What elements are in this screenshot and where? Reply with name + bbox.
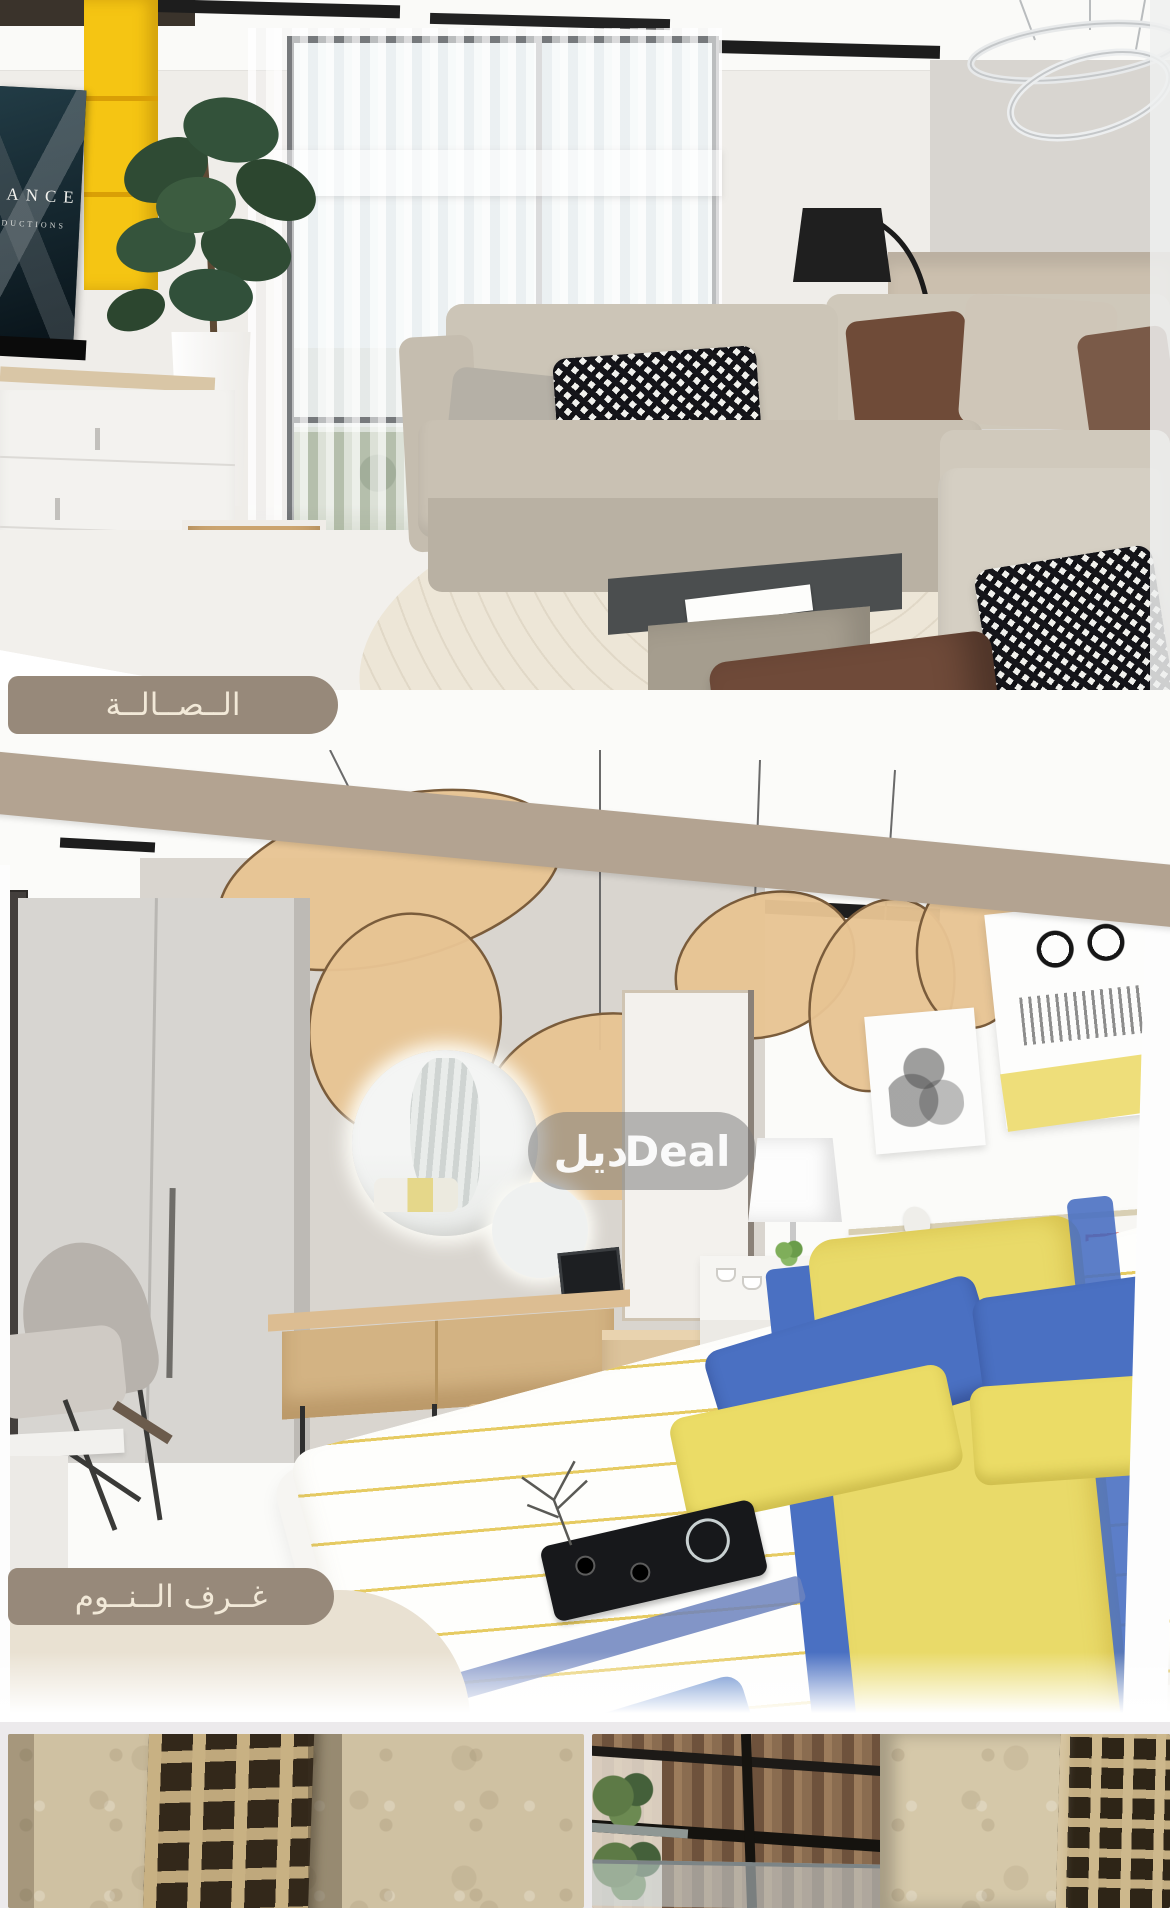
desk-side-panel — [0, 1456, 68, 1586]
cat-glasses-sketch — [1012, 913, 1152, 1046]
mirror-bed-reflection — [374, 1178, 458, 1212]
bedroom-label: غــرف الــنــوم — [8, 1568, 334, 1625]
watermark: ديلDeal — [528, 1112, 756, 1190]
tv-screen: DANCE PRODUCTIONS — [0, 86, 87, 342]
bear-sketch — [885, 1039, 966, 1133]
stone-column — [880, 1734, 1062, 1908]
living-room-label-text: الــصــالــة — [106, 687, 241, 723]
ring-chandelier — [940, 0, 1170, 150]
mashrabiya-lattice-panel — [142, 1734, 314, 1908]
facade-tile-right — [592, 1734, 1170, 1908]
tea-cup — [742, 1276, 762, 1290]
glass-teapot — [682, 1514, 735, 1567]
facade-tile-left — [8, 1734, 584, 1908]
green-sprig — [772, 1238, 806, 1266]
mashrabiya-lattice-right — [1056, 1734, 1170, 1908]
floor-lamp-shade — [793, 208, 891, 282]
tea-cup-dark — [628, 1560, 652, 1584]
tv-abstract-art — [0, 86, 87, 342]
lattice-side-shadow — [308, 1734, 342, 1908]
living-room-label: الــصــالــة — [8, 676, 338, 734]
tea-cup-dark — [573, 1554, 597, 1578]
balcony-plants — [592, 1764, 660, 1828]
edge-shadow — [8, 1734, 34, 1908]
drawer-handle — [95, 428, 100, 450]
drawer-seam — [0, 456, 235, 466]
glass-balustrade — [592, 1859, 884, 1908]
watermark-latin-text: Deal — [624, 1127, 730, 1176]
bedroom-label-text: غــرف الــنــوم — [75, 1579, 267, 1615]
tv-soundbar — [0, 336, 86, 361]
wall-art-small — [864, 1007, 986, 1154]
drawer-seam — [435, 1321, 438, 1409]
pillow-brown — [845, 310, 976, 432]
table-lamp-shade — [748, 1138, 842, 1222]
photo-right-edge — [1150, 0, 1170, 700]
watermark-arabic-text: ديل — [554, 1127, 629, 1176]
wardrobe-handle — [166, 1188, 175, 1378]
tea-cup — [716, 1268, 736, 1282]
exterior-facade-strip — [0, 1722, 1170, 1908]
listing-collage: DANCE PRODUCTIONS — [0, 0, 1170, 1908]
fiddle-leaf-plant — [96, 60, 326, 350]
drawer-handle — [55, 498, 60, 520]
